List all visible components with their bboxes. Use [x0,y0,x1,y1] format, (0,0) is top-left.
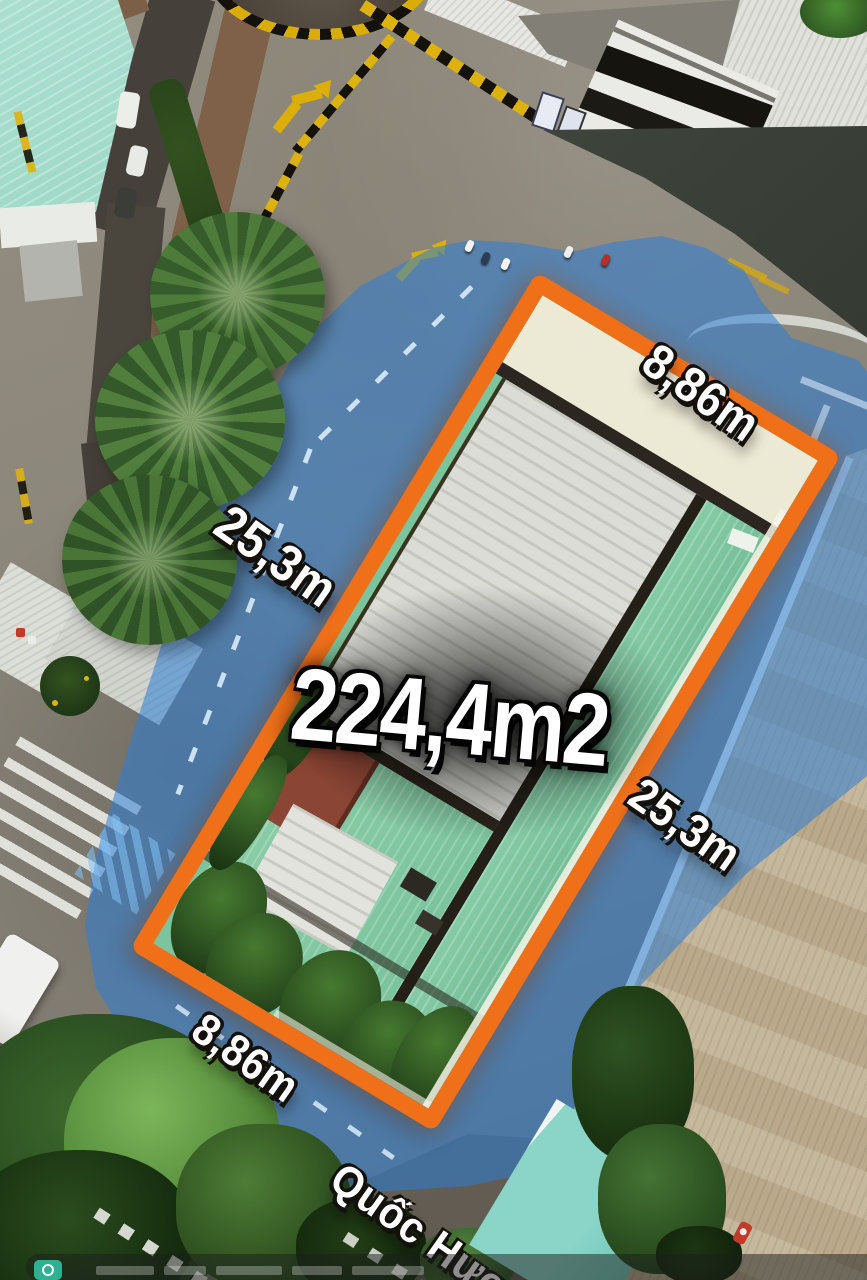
arrow-bar [273,101,302,134]
road-arrow [268,76,344,142]
motorbike-rider [738,1227,747,1236]
white-awning [0,202,97,249]
planter-flower [52,700,58,706]
footer-ghost-text [352,1266,424,1275]
motorbike [28,636,36,644]
aerial-photo-stage: 8,86m 25,3m 25,3m 8,86m Quốc Hương 224,4… [0,0,867,1280]
arrow-bar [291,88,323,105]
camera-icon [34,1260,62,1280]
footer-ghost-text [164,1266,206,1275]
motorbike [16,628,25,637]
area-label: 224,4m2 [287,652,612,782]
gray-structure [19,240,83,302]
planter-flower [84,676,89,681]
footer-ghost-text [292,1266,342,1275]
footer-ghost-text [216,1266,282,1275]
camera-lens [42,1264,54,1276]
planter-bush [40,656,100,716]
footer-bar [26,1254,867,1280]
palm-tree [62,475,237,645]
footer-ghost-text [96,1266,154,1275]
